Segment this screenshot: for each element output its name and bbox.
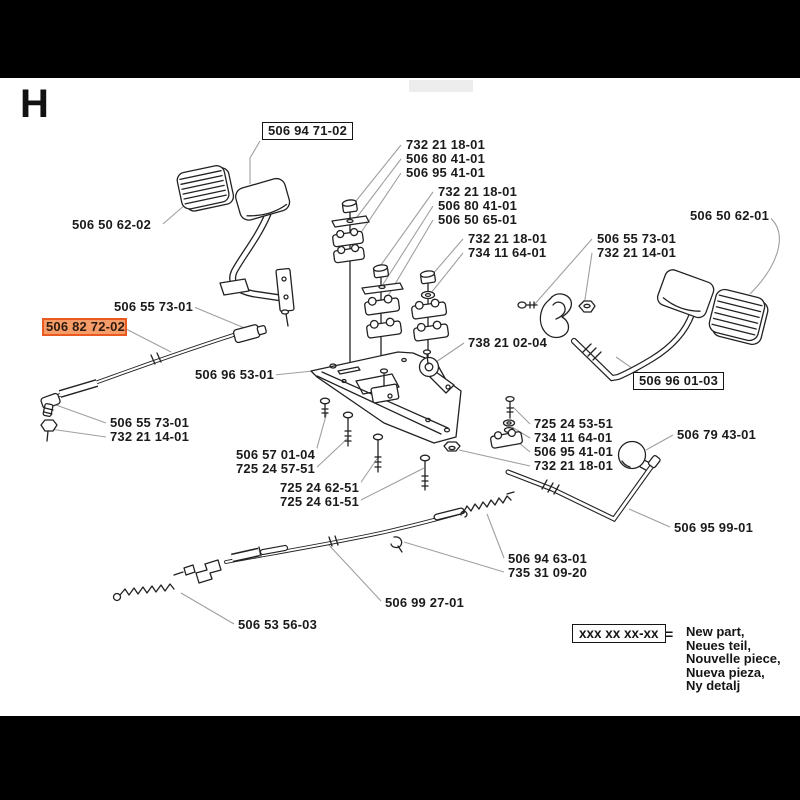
clamp-stack-3 — [411, 270, 449, 341]
part-label: 734 11 64-01 — [466, 246, 548, 260]
part-label: 732 21 18-01 — [404, 138, 487, 152]
legend-line-en: New part, — [686, 625, 781, 639]
part-label: 725 24 53-51 — [532, 417, 615, 431]
legend-line-fr: Nouvelle piece, — [686, 652, 781, 666]
part-label: 506 94 63-01 — [506, 552, 589, 566]
part-label: 732 21 14-01 — [595, 246, 678, 260]
part-label: 506 95 99-01 — [672, 521, 755, 535]
part-label: 506 50 65-01 — [436, 213, 519, 227]
right-pedal-plate — [655, 268, 716, 320]
part-label: 506 99 27-01 — [383, 596, 466, 610]
part-label-boxed-right: 506 96 01-03 — [633, 372, 724, 390]
part-label: 506 55 73-01 — [112, 300, 195, 314]
exploded-diagram-artwork — [0, 0, 800, 800]
part-label: 735 31 09-20 — [506, 566, 589, 580]
part-label: 732 21 14-01 — [108, 430, 191, 444]
clamp-stack-2 — [362, 264, 403, 338]
part-label: 506 50 62-01 — [688, 209, 771, 223]
left-pedal-pad — [176, 163, 235, 213]
part-label: 725 24 57-51 — [234, 462, 317, 476]
parts-diagram-page: H — [0, 0, 800, 800]
part-label: 506 95 41-01 — [404, 166, 487, 180]
part-label-highlighted: 506 82 72-02 — [42, 318, 127, 336]
part-label: 732 21 18-01 — [466, 232, 549, 246]
clamp-bolt-column-right — [490, 397, 523, 449]
part-label: 725 24 61-51 — [278, 495, 361, 509]
part-label: 732 21 18-01 — [532, 459, 615, 473]
legend-text: New part, Neues teil, Nouvelle piece, Nu… — [686, 625, 781, 693]
part-label: 506 50 62-02 — [70, 218, 153, 232]
legend-line-es: Nueva pieza, — [686, 666, 781, 680]
right-pedal-bracket — [518, 294, 595, 338]
part-label: 738 21 02-04 — [466, 336, 549, 350]
part-label-boxed-top: 506 94 71-02 — [262, 122, 353, 140]
part-label: 506 55 73-01 — [595, 232, 678, 246]
part-label: 506 96 53-01 — [193, 368, 276, 382]
part-label: 506 57 01-04 — [234, 448, 317, 462]
part-label: 506 79 43-01 — [675, 428, 758, 442]
legend-pattern-box: xxx xx xx-xx — [572, 624, 666, 643]
part-label: 506 53 56-03 — [236, 618, 319, 632]
left-pedal-plate — [234, 176, 292, 222]
part-label: 506 55 73-01 — [108, 416, 191, 430]
left-pedal-arm — [220, 214, 294, 326]
part-label: 732 21 18-01 — [436, 185, 519, 199]
right-pedal-pad — [707, 288, 771, 347]
part-label: 506 80 41-01 — [436, 199, 519, 213]
right-pedal-arm — [574, 314, 692, 378]
tension-spring-mid — [461, 492, 514, 517]
legend-equals: = — [665, 626, 673, 642]
part-label: 734 11 64-01 — [532, 431, 614, 445]
part-label: 506 80 41-01 — [404, 152, 487, 166]
legend-line-sv: Ny detalj — [686, 679, 781, 693]
return-spring-left — [114, 572, 184, 601]
part-label: 725 24 62-51 — [278, 481, 361, 495]
part-label: 506 95 41-01 — [532, 445, 615, 459]
knob — [619, 442, 652, 471]
legend-line-de: Neues teil, — [686, 639, 781, 653]
